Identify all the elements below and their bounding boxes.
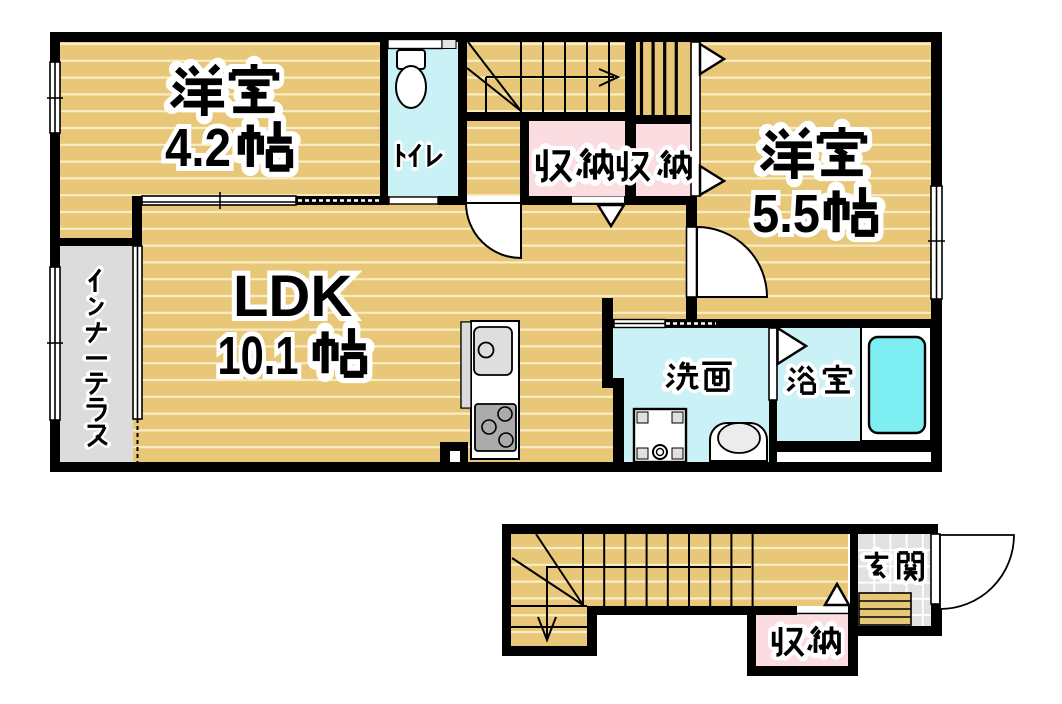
svg-text:LDK: LDK (233, 264, 352, 329)
svg-text:5.5: 5.5 (752, 184, 820, 244)
svg-text:4.2: 4.2 (165, 118, 231, 178)
svg-text:10.1: 10.1 (218, 326, 299, 386)
